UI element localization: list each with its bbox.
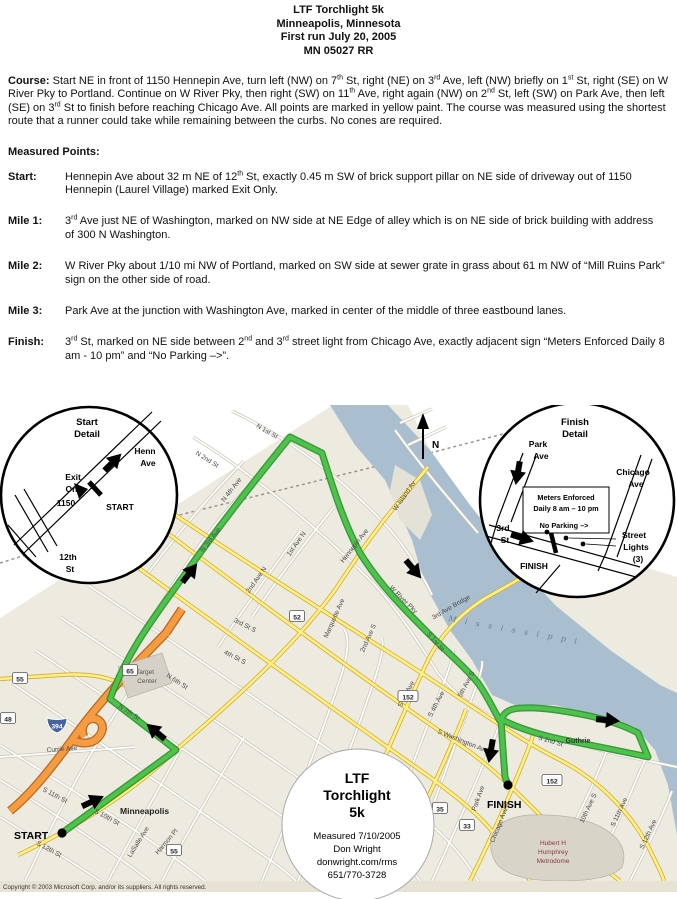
document-page: LTF Torchlight 5k Minneapolis, Minnesota…: [0, 0, 677, 899]
course-description: Course: Start NE in front of 1150 Hennep…: [8, 75, 669, 129]
third-st-label: St: [501, 535, 510, 545]
point-label: Finish:: [8, 336, 65, 363]
exit-only-label: Exit: [65, 472, 81, 482]
target-center-label: Center: [137, 678, 157, 685]
point-text: W River Pky about 1/10 mi NW of Portland…: [65, 260, 669, 287]
metrodome-label: Hubert H: [540, 840, 566, 847]
point-text: Hennepin Ave about 32 m NE of 12th St, e…: [65, 171, 669, 198]
course-text: Start NE in front of 1150 Hennepin Ave, …: [8, 75, 668, 127]
highway-shield: 33: [460, 820, 475, 831]
race-title-bubble: LTF Torchlight 5k Measured 7/10/2005 Don…: [282, 749, 434, 899]
start-marker-label: START: [14, 830, 49, 842]
measured-points-heading: Measured Points:: [8, 146, 669, 158]
bubble-title: 5k: [349, 804, 365, 820]
highway-shield: 52: [290, 611, 305, 622]
highway-shield: 48: [1, 713, 16, 724]
henn-ave-label: Ave: [140, 458, 156, 468]
measured-point-row: Finish: 3rd St, marked on NE side betwee…: [8, 336, 669, 363]
measured-point-row: Mile 1: 3rd Ave just NE of Washington, m…: [8, 215, 669, 242]
exit-only-label: Only: [66, 484, 85, 494]
metrodome-label: Humphrey: [538, 849, 569, 856]
svg-text:52: 52: [293, 615, 301, 622]
bubble-phone: 651/770-3728: [328, 870, 387, 881]
highway-shield: 152: [542, 775, 562, 786]
henn-ave-label: Henn: [134, 446, 155, 456]
twelfth-st-label: St: [66, 564, 75, 574]
address-1150-label: 1150: [57, 498, 76, 508]
measured-point-row: Mile 3: Park Ave at the junction with Wa…: [8, 305, 669, 318]
point-label: Mile 3:: [8, 305, 65, 318]
svg-text:394: 394: [51, 724, 62, 731]
finish-detail-finish-label: FINISH: [520, 561, 548, 571]
street-lights-label: (3): [633, 554, 644, 564]
course-map-svg: START FINISH Minneapolis M i s s i s s i…: [0, 405, 677, 899]
measured-point-row: Start: Hennepin Ave about 32 m NE of 12t…: [8, 171, 669, 198]
course-label: Course:: [8, 75, 50, 87]
bubble-title: LTF: [345, 770, 370, 786]
copyright-text: Copyright © 2003 Microsoft Corp. and/or …: [3, 883, 207, 891]
meters-sign-text: Meters Enforced: [537, 493, 594, 502]
chicago-ave-label: Chicago: [616, 467, 650, 477]
start-detail-inset: Start Detail Henn Ave Exit Only 1150 STA…: [1, 407, 177, 583]
svg-text:48: 48: [4, 717, 12, 724]
bubble-measurer-name: Don Wright: [333, 844, 381, 855]
finish-marker-dot: [503, 780, 512, 789]
finish-detail-inset: Meters Enforced Daily 8 am – 10 pm No Pa…: [480, 405, 674, 597]
finish-detail-title: Finish: [561, 417, 589, 428]
certification-number: MN 05027 RR: [0, 45, 677, 59]
meters-sign-text: Daily 8 am – 10 pm: [533, 504, 599, 513]
point-label: Mile 2:: [8, 260, 65, 287]
street-lights-label: Street: [622, 530, 646, 540]
measured-points-list: Start: Hennepin Ave about 32 m NE of 12t…: [8, 171, 669, 364]
start-detail-start-label: START: [106, 502, 135, 512]
point-label: Mile 1:: [8, 215, 65, 242]
start-marker-dot: [57, 828, 66, 837]
svg-text:152: 152: [546, 779, 558, 786]
course-map: START FINISH Minneapolis M i s s i s s i…: [0, 405, 677, 899]
highway-shield: 55: [167, 845, 182, 856]
svg-text:33: 33: [463, 824, 471, 831]
first-run-date: First run July 20, 2005: [0, 31, 677, 45]
bubble-measured-date: Measured 7/10/2005: [313, 831, 400, 842]
page-subtitle-city: Minneapolis, Minnesota: [0, 18, 677, 32]
chicago-ave-label: Ave: [628, 479, 644, 489]
svg-text:55: 55: [170, 849, 178, 856]
north-label: N: [432, 440, 439, 451]
city-label: Minneapolis: [120, 806, 169, 816]
guthrie-label: Guthrie: [566, 738, 591, 745]
point-text: 3rd Ave just NE of Washington, marked on…: [65, 215, 669, 242]
no-parking-sign-text: No Parking –>: [540, 521, 589, 530]
highway-shield: 35: [433, 803, 448, 814]
svg-text:55: 55: [16, 677, 24, 684]
svg-text:35: 35: [436, 807, 444, 814]
point-text: Park Ave at the junction with Washington…: [65, 305, 669, 318]
park-ave-label: Ave: [533, 451, 549, 461]
start-detail-title: Start: [76, 417, 98, 428]
third-st-label: 3rd: [496, 523, 509, 533]
measured-point-row: Mile 2: W River Pky about 1/10 mi NW of …: [8, 260, 669, 287]
twelfth-st-label: 12th: [59, 552, 76, 562]
highway-shield: 65: [123, 665, 138, 676]
finish-detail-title: Detail: [562, 429, 588, 440]
highway-shield: 55: [13, 673, 28, 684]
document-header: LTF Torchlight 5k Minneapolis, Minnesota…: [0, 0, 677, 58]
street-label: N 1st St: [255, 423, 279, 441]
start-detail-title: Detail: [74, 429, 100, 440]
bubble-website: donwright.com/rms: [317, 857, 397, 868]
bubble-title: Torchlight: [323, 787, 391, 803]
street-lights-label: Lights: [623, 542, 649, 552]
point-label: Start:: [8, 171, 65, 198]
svg-text:65: 65: [126, 669, 134, 676]
highway-shield: 152: [398, 691, 418, 702]
page-title: LTF Torchlight 5k: [0, 4, 677, 18]
svg-text:152: 152: [402, 695, 414, 702]
metrodome-label: Metrodome: [537, 858, 570, 865]
park-ave-label: Park: [529, 439, 548, 449]
target-center-label: Target: [136, 669, 154, 676]
point-text: 3rd St, marked on NE side between 2nd an…: [65, 336, 669, 363]
